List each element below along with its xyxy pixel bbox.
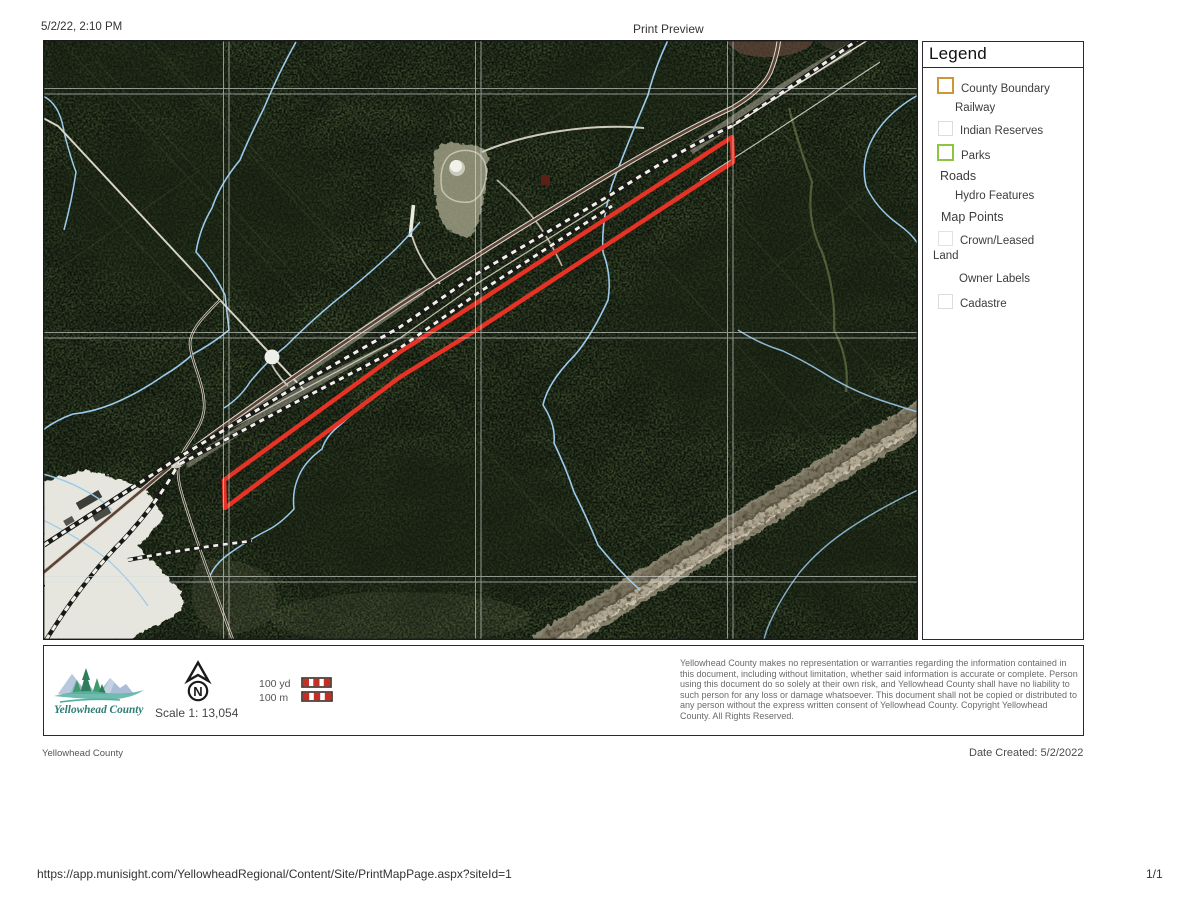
svg-text:N: N: [193, 684, 202, 699]
svg-text:Yellowhead County: Yellowhead County: [54, 704, 144, 716]
